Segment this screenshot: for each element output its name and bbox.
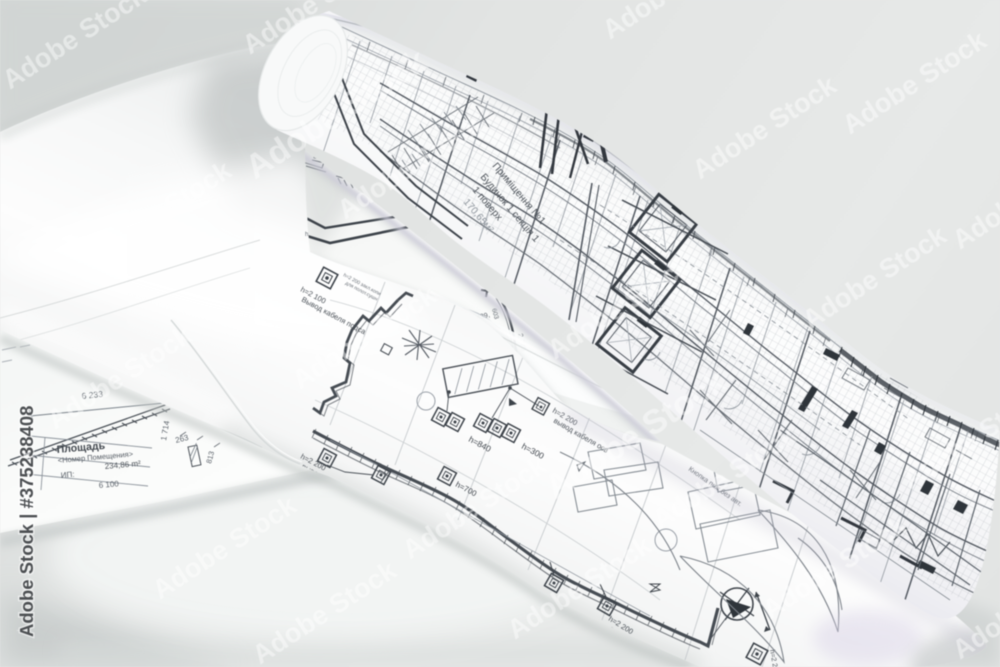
svg-text:6 100: 6 100 [98, 479, 119, 490]
svg-text:Adobe Stock | #375238408: Adobe Stock | #375238408 [16, 406, 37, 637]
svg-text:ИП:: ИП: [60, 470, 74, 480]
